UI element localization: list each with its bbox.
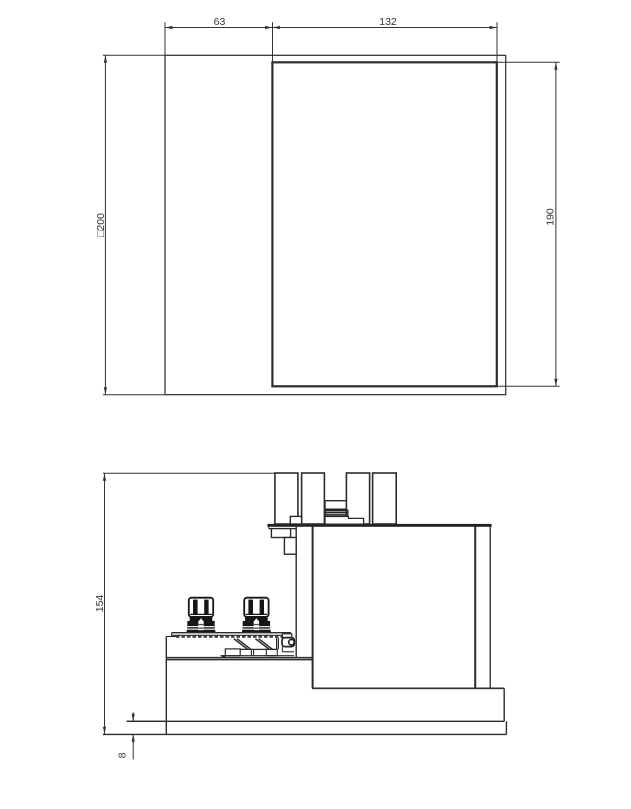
svg-text:63: 63: [214, 16, 226, 28]
svg-text:190: 190: [544, 208, 556, 226]
svg-text:□200: □200: [95, 213, 107, 237]
svg-text:154: 154: [94, 595, 106, 613]
svg-text:132: 132: [379, 16, 397, 28]
svg-text:8: 8: [116, 752, 128, 758]
